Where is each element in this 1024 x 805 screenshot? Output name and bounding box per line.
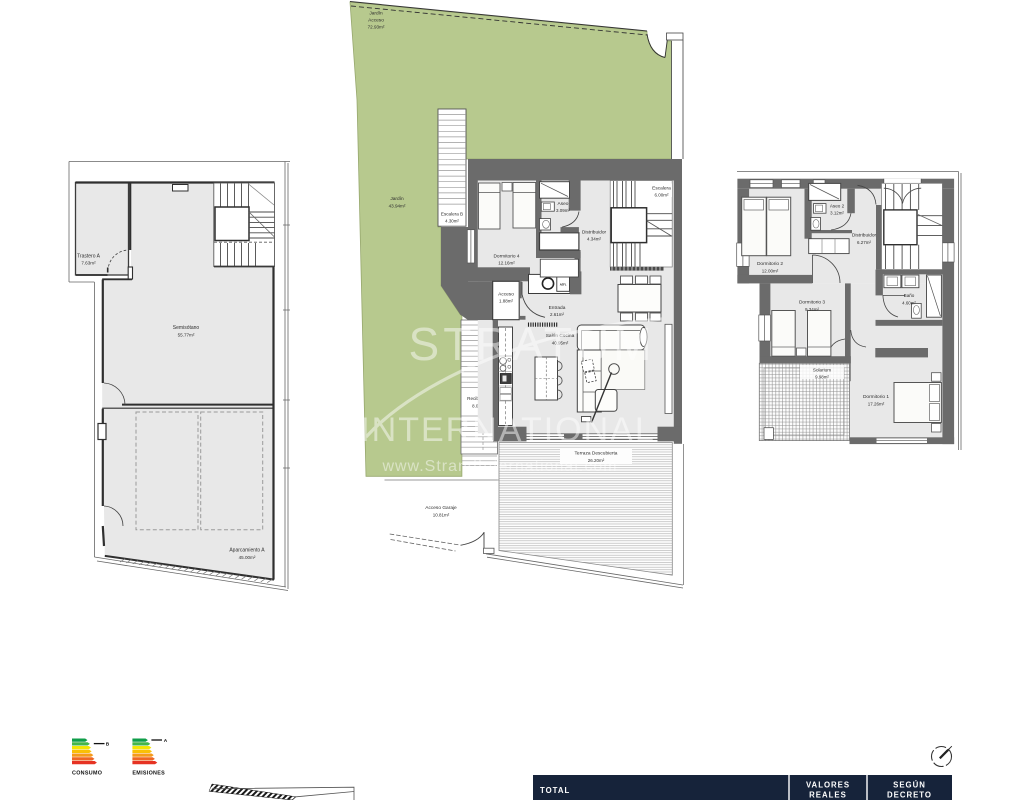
svg-text:VALORES: VALORES <box>806 781 850 790</box>
svg-text:12.00m²: 12.00m² <box>762 269 779 274</box>
svg-text:43.94m²: 43.94m² <box>389 204 406 209</box>
svg-text:Dormitorio 2: Dormitorio 2 <box>757 261 783 267</box>
svg-text:CONSUMO: CONSUMO <box>72 771 102 777</box>
svg-text:72.93m²: 72.93m² <box>368 25 385 30</box>
svg-text:Acceso Garaje: Acceso Garaje <box>425 505 457 511</box>
svg-text:4.30m²: 4.30m² <box>445 219 459 224</box>
svg-text:9.98m²: 9.98m² <box>815 375 829 380</box>
svg-text:Distribuidor: Distribuidor <box>582 230 607 236</box>
svg-text:6.27m²: 6.27m² <box>857 240 872 245</box>
svg-text:17.26m²: 17.26m² <box>868 402 885 407</box>
svg-text:1.88m²: 1.88m² <box>499 299 514 304</box>
svg-text:Baño: Baño <box>904 293 915 298</box>
svg-text:Escalera B: Escalera B <box>441 212 463 217</box>
svg-text:45.00m²: 45.00m² <box>239 555 256 560</box>
svg-text:6.00m²: 6.00m² <box>654 193 669 198</box>
svg-text:9.34m²: 9.34m² <box>805 307 820 312</box>
svg-text:www.StrandInternational.com: www.StrandInternational.com <box>381 458 617 475</box>
svg-text:B: B <box>106 742 110 748</box>
svg-text:Entrada: Entrada <box>549 305 566 311</box>
svg-text:EMISIONES: EMISIONES <box>132 771 165 777</box>
svg-text:3.12m²: 3.12m² <box>830 211 844 216</box>
svg-text:Aseo 2: Aseo 2 <box>830 204 845 209</box>
svg-text:Aseo: Aseo <box>558 201 569 207</box>
svg-text:STRATUM: STRATUM <box>409 318 656 370</box>
svg-text:Solarium: Solarium <box>813 368 831 373</box>
svg-text:REALES: REALES <box>809 791 847 800</box>
svg-text:Jardín: Jardín <box>390 196 404 202</box>
svg-text:Escalera: Escalera <box>652 186 671 192</box>
svg-text:Dormitorio 1: Dormitorio 1 <box>863 394 889 400</box>
svg-text:Acceso: Acceso <box>498 292 514 298</box>
svg-text:55.77m²: 55.77m² <box>178 333 195 338</box>
svg-text:Semisótano: Semisótano <box>173 325 200 331</box>
svg-text:Distribuidor: Distribuidor <box>852 233 877 239</box>
svg-text:Jardín: Jardín <box>369 11 383 17</box>
svg-text:4.60m²: 4.60m² <box>902 301 916 306</box>
svg-text:Acceso: Acceso <box>368 18 384 24</box>
svg-text:Dormitorio 3: Dormitorio 3 <box>799 300 825 306</box>
svg-text:Dormitorio 4: Dormitorio 4 <box>493 254 519 260</box>
svg-text:4.34m²: 4.34m² <box>587 237 602 242</box>
svg-text:SEGÚN: SEGÚN <box>893 781 926 790</box>
svg-text:12.16m²: 12.16m² <box>498 261 515 266</box>
svg-text:Aparcamiento A: Aparcamiento A <box>229 548 265 554</box>
svg-text:Terraza Descubierta: Terraza Descubierta <box>575 451 618 457</box>
svg-text:Trastero A: Trastero A <box>77 254 101 260</box>
svg-text:3.09m²: 3.09m² <box>556 208 571 213</box>
svg-text:7.63m²: 7.63m² <box>81 261 96 266</box>
svg-text:TOTAL: TOTAL <box>540 786 570 795</box>
svg-text:AEFL: AEFL <box>560 283 567 287</box>
svg-text:DECRETO: DECRETO <box>887 791 932 800</box>
svg-text:INTERNATIONAL: INTERNATIONAL <box>360 411 656 449</box>
svg-text:10.81m²: 10.81m² <box>433 513 450 518</box>
svg-text:2.61m²: 2.61m² <box>550 312 565 317</box>
svg-text:A: A <box>164 738 168 744</box>
